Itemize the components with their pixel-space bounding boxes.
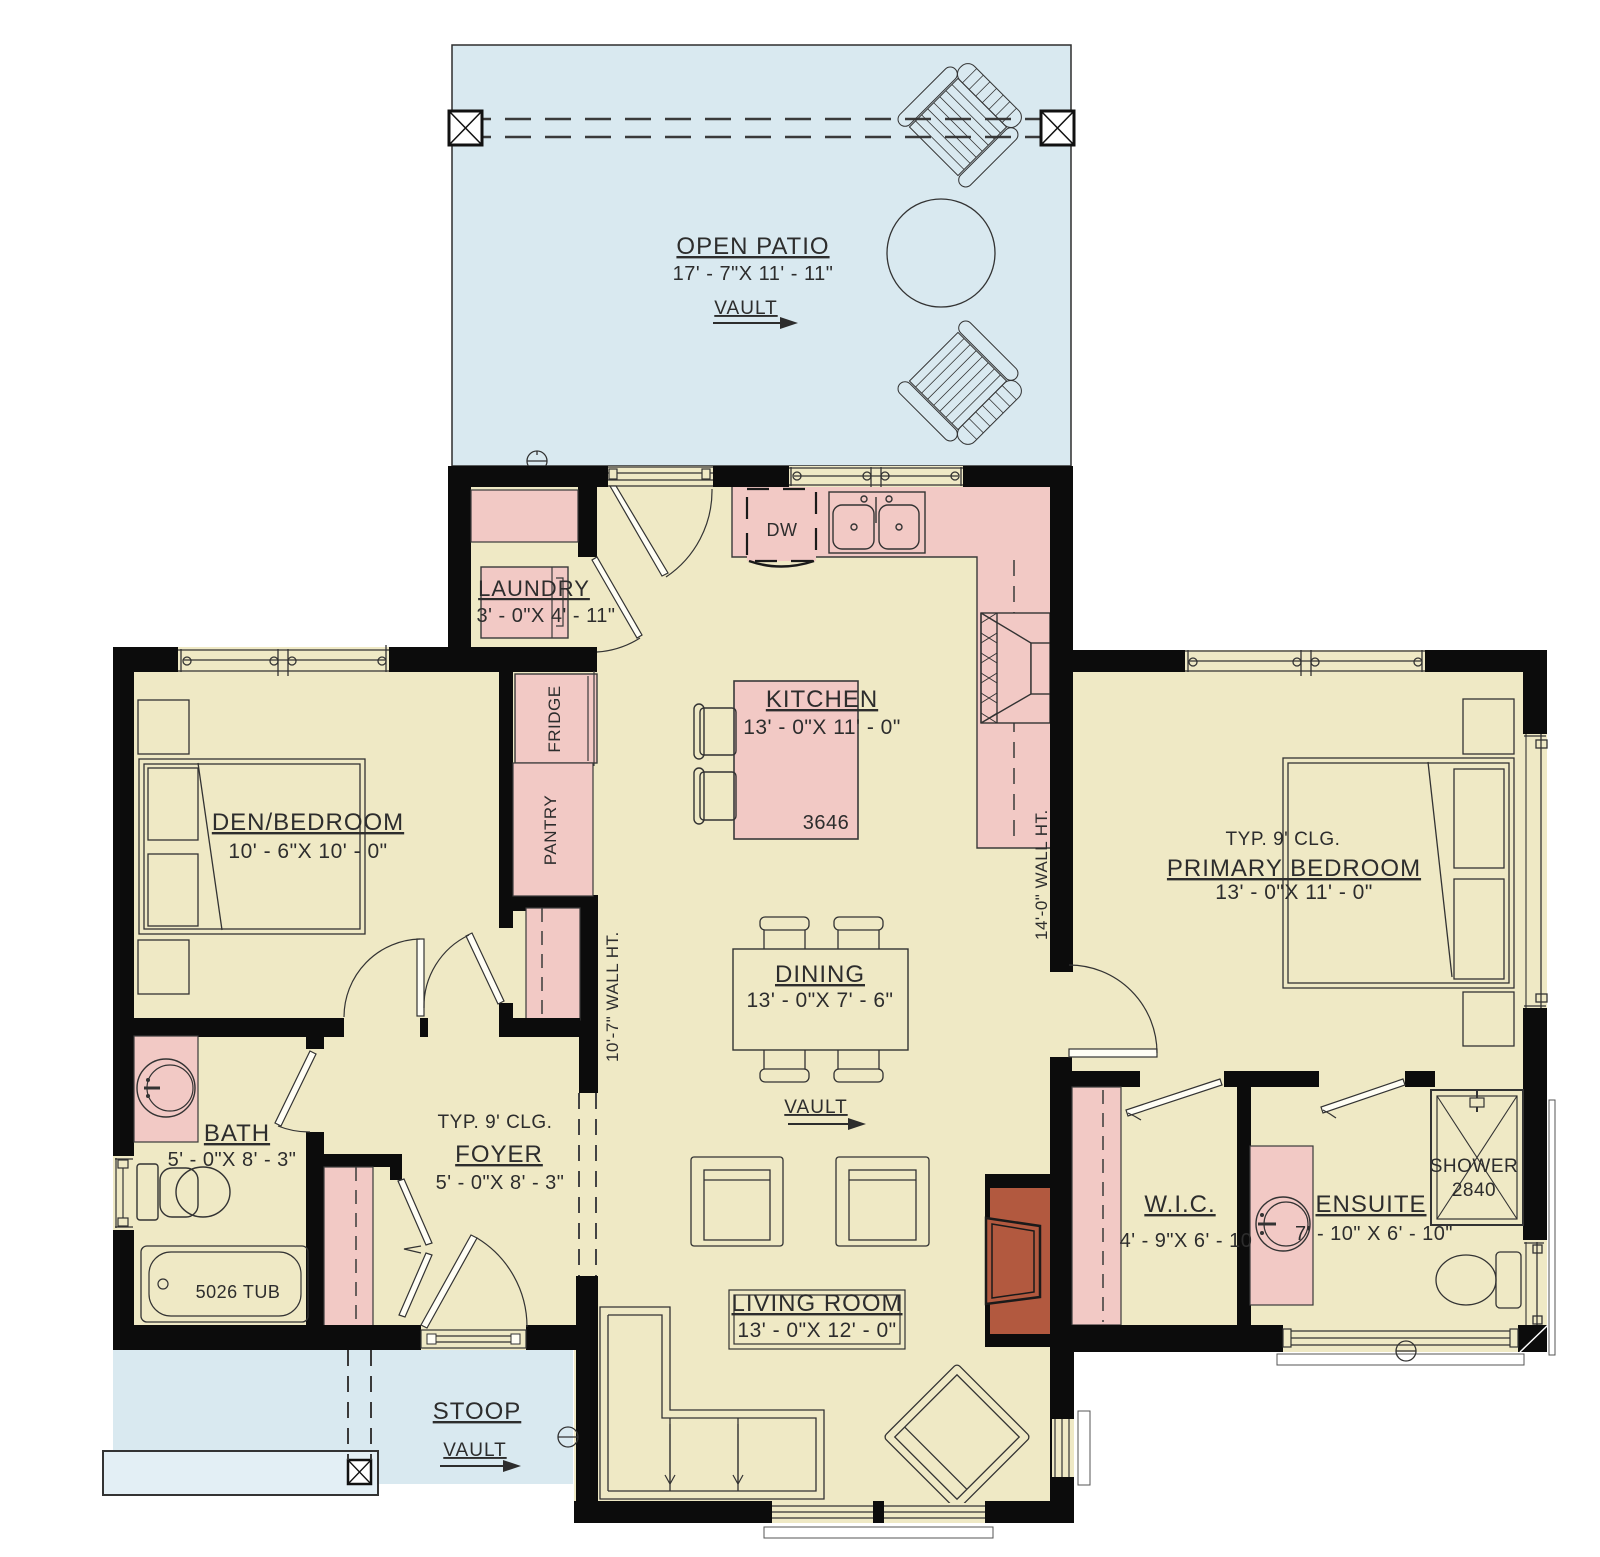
svg-text:STOOP: STOOP <box>433 1398 522 1425</box>
svg-text:DEN/BEDROOM: DEN/BEDROOM <box>212 809 404 836</box>
svg-text:ENSUITE: ENSUITE <box>1315 1191 1426 1218</box>
svg-text:VAULT: VAULT <box>714 298 777 319</box>
svg-text:2840: 2840 <box>1452 1180 1496 1201</box>
svg-text:3646: 3646 <box>803 812 850 834</box>
svg-text:10'-7" WALL HT.: 10'-7" WALL HT. <box>603 931 622 1062</box>
svg-text:LAUNDRY: LAUNDRY <box>478 576 590 601</box>
svg-text:4' - 9"X 6' - 10: 4' - 9"X 6' - 10 <box>1120 1230 1253 1252</box>
svg-text:DINING: DINING <box>775 961 865 988</box>
svg-text:BATH: BATH <box>204 1120 270 1147</box>
svg-text:LIVING ROOM: LIVING ROOM <box>731 1290 902 1317</box>
svg-text:SHOWER: SHOWER <box>1430 1156 1519 1177</box>
svg-text:17' - 7"X 11' - 11": 17' - 7"X 11' - 11" <box>673 263 834 285</box>
svg-text:VAULT: VAULT <box>784 1097 847 1118</box>
svg-text:7' - 10" X 6' - 10": 7' - 10" X 6' - 10" <box>1295 1223 1453 1245</box>
svg-text:DW: DW <box>767 520 798 540</box>
svg-text:FRIDGE: FRIDGE <box>545 685 564 752</box>
svg-text:13' - 0"X 11' - 0": 13' - 0"X 11' - 0" <box>1215 881 1373 904</box>
svg-text:W.I.C.: W.I.C. <box>1144 1191 1215 1218</box>
svg-text:5' - 0"X 8' - 3": 5' - 0"X 8' - 3" <box>168 1149 297 1171</box>
svg-text:5026 TUB: 5026 TUB <box>196 1282 281 1302</box>
svg-text:FOYER: FOYER <box>455 1141 543 1168</box>
svg-text:10' - 6"X 10' - 0": 10' - 6"X 10' - 0" <box>228 840 387 863</box>
svg-text:VAULT: VAULT <box>443 1440 506 1461</box>
svg-text:5' - 0"X 8' - 3": 5' - 0"X 8' - 3" <box>436 1172 565 1194</box>
svg-text:13' - 0"X 11' - 0": 13' - 0"X 11' - 0" <box>743 716 901 739</box>
svg-text:TYP. 9' CLG.: TYP. 9' CLG. <box>438 1112 553 1133</box>
svg-text:TYP. 9' CLG.: TYP. 9' CLG. <box>1226 829 1341 850</box>
svg-text:OPEN PATIO: OPEN PATIO <box>676 233 829 260</box>
svg-text:KITCHEN: KITCHEN <box>766 686 878 713</box>
svg-text:13' - 0"X 7' - 6": 13' - 0"X 7' - 6" <box>747 989 894 1012</box>
svg-text:14'-0" WALL HT.: 14'-0" WALL HT. <box>1032 809 1051 940</box>
svg-text:3' - 0"X 4' - 11": 3' - 0"X 4' - 11" <box>477 605 616 627</box>
svg-text:PANTRY: PANTRY <box>541 795 560 865</box>
svg-text:13' - 0"X 12' - 0": 13' - 0"X 12' - 0" <box>737 1319 896 1342</box>
svg-text:PRIMARY BEDROOM: PRIMARY BEDROOM <box>1167 855 1421 882</box>
